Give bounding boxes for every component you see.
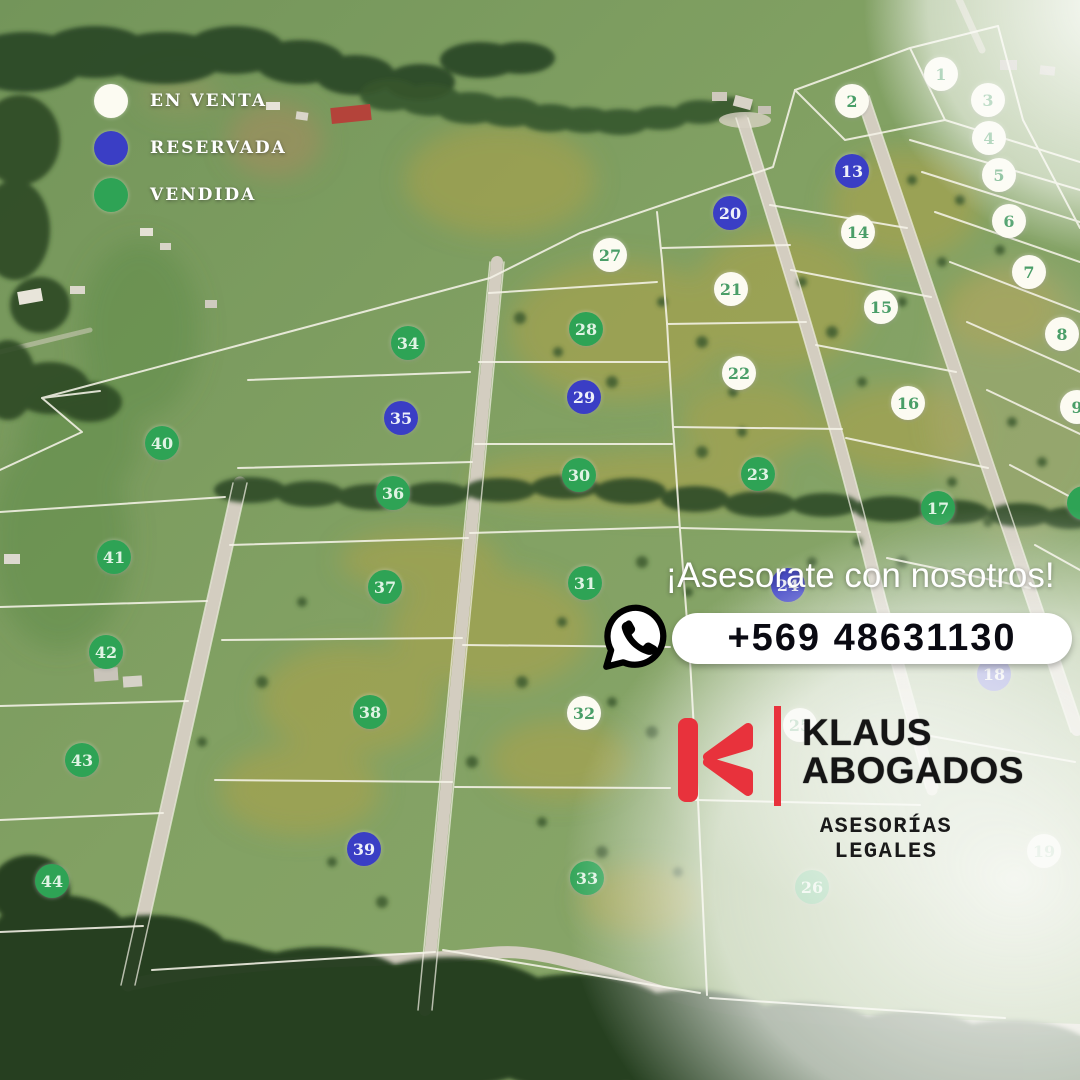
legend-label: VENDIDA [150,185,256,205]
whatsapp-icon[interactable] [600,601,672,678]
plot-marker-44: 44 [35,864,69,898]
plot-marker-32: 32 [567,696,601,730]
klaus-k-icon [678,716,758,809]
plot-marker-14: 14 [841,215,875,249]
brand-tagline: ASESORÍAS LEGALES [766,814,1006,864]
legend-label: RESERVADA [150,138,287,158]
plot-marker-38: 38 [353,695,387,729]
plot-marker-6: 6 [992,204,1026,238]
plot-marker-37: 37 [368,570,402,604]
plot-marker-1: 1 [924,57,958,91]
plot-marker-17: 17 [921,491,955,525]
vendida-swatch-icon [94,178,128,212]
plot-marker-9: 9 [1060,390,1080,424]
phone-pill[interactable]: +569 48631130 [672,613,1072,664]
plot-marker-35: 35 [384,401,418,435]
plot-marker-7: 7 [1012,255,1046,289]
plot-marker-2: 2 [835,84,869,118]
plot-marker-36: 36 [376,476,410,510]
plot-marker-8: 8 [1045,317,1079,351]
legend-row-vendida: VENDIDA [94,178,287,212]
plot-marker-5: 5 [982,158,1016,192]
plot-marker-edge [1067,486,1080,520]
plot-marker-22: 22 [722,356,756,390]
legend: EN VENTA RESERVADA VENDIDA [94,84,287,225]
plot-marker-30: 30 [562,458,596,492]
plot-marker-42: 42 [89,635,123,669]
brand-logo: KLAUS ABOGADOS ASESORÍAS LEGALES [660,688,1070,863]
plot-marker-20: 20 [713,196,747,230]
plot-marker-29: 29 [567,380,601,414]
plot-marker-31: 31 [568,566,602,600]
plot-marker-41: 41 [97,540,131,574]
plot-marker-26: 26 [795,870,829,904]
plot-marker-43: 43 [65,743,99,777]
plot-marker-34: 34 [391,326,425,360]
contact-message: ¡Asesorate con nosotros! [650,556,1070,596]
plot-marker-33: 33 [570,861,604,895]
plot-marker-39: 39 [347,832,381,866]
plot-marker-3: 3 [971,83,1005,117]
en-venta-swatch-icon [94,84,128,118]
plot-marker-27: 27 [593,238,627,272]
brand-name-line1: KLAUS [802,714,1024,752]
plot-marker-13: 13 [835,154,869,188]
legend-row-reservada: RESERVADA [94,131,287,165]
plot-marker-16: 16 [891,386,925,420]
legend-label: EN VENTA [150,91,267,111]
phone-number: +569 48631130 [727,617,1016,660]
plot-marker-40: 40 [145,426,179,460]
plot-marker-28: 28 [569,312,603,346]
reservada-swatch-icon [94,131,128,165]
logo-divider-bar [774,706,781,806]
plot-marker-23: 23 [741,457,775,491]
brand-name-line2: ABOGADOS [802,752,1024,790]
plot-marker-21: 21 [714,272,748,306]
legend-row-en-venta: EN VENTA [94,84,287,118]
plot-marker-15: 15 [864,290,898,324]
plot-marker-4: 4 [972,121,1006,155]
brand-name: KLAUS ABOGADOS [802,714,1024,790]
flyer-canvas: 1234567891314151617181920212223242526272… [0,0,1080,1080]
